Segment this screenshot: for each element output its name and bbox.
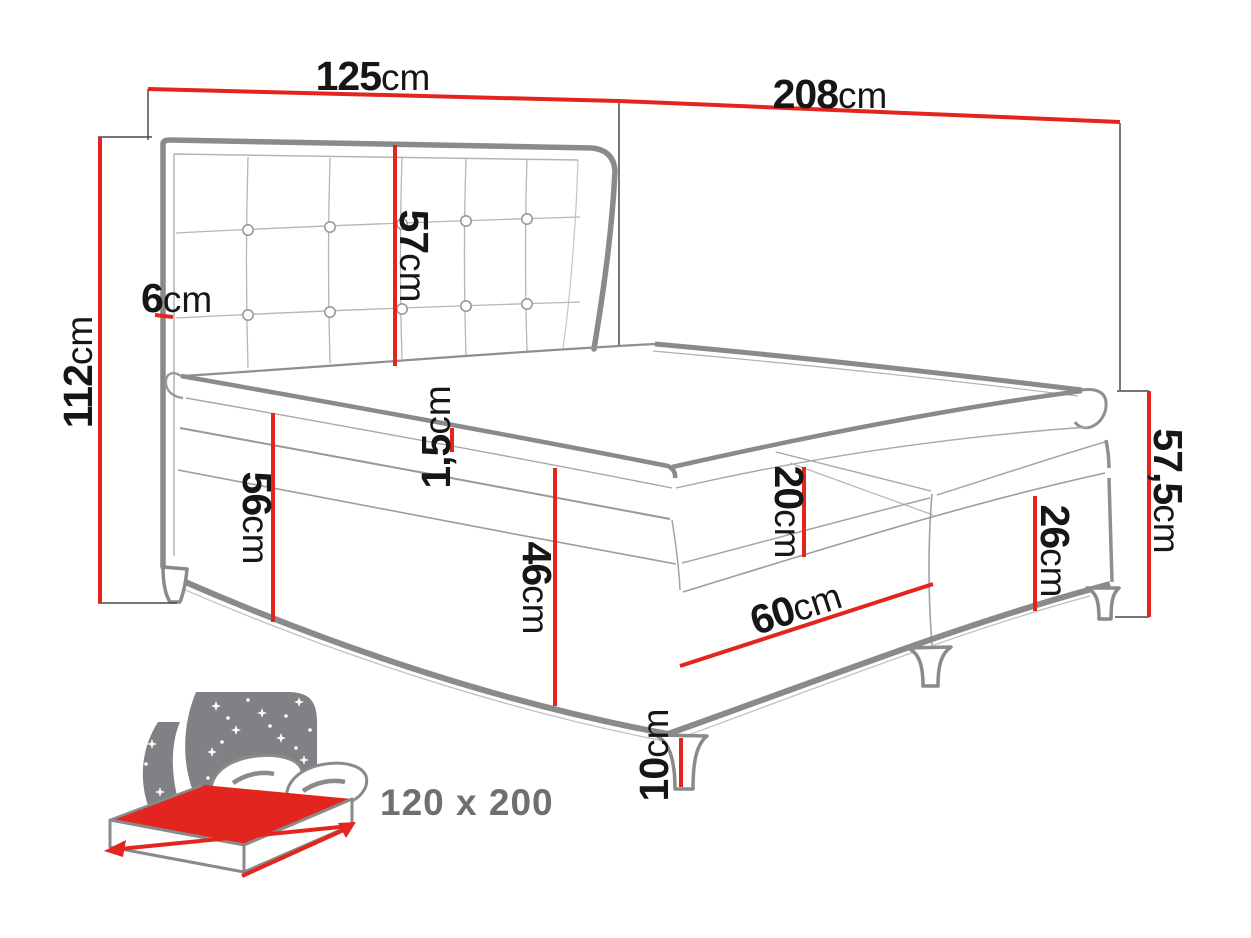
tuft-buttons <box>243 214 532 320</box>
tuft-button <box>461 216 471 226</box>
star-dot <box>308 728 312 732</box>
label-headboard-height: 112cm <box>55 316 101 428</box>
headboard-frame <box>163 140 615 567</box>
tuft-button <box>243 225 253 235</box>
tuft-button <box>325 222 335 232</box>
mattress-corner-curl <box>1075 390 1106 428</box>
dimension-labels: 125cm 208cm 112cm 6cm 57cm 1,5cm 56cm 46… <box>55 53 1191 801</box>
dimension-lines <box>100 89 1149 787</box>
label-side-thickness: 6cm <box>141 275 212 321</box>
headboard-tufting <box>176 157 580 368</box>
label-side-height: 56cm <box>234 472 280 565</box>
label-topper: 1,5cm <box>413 385 459 488</box>
tuft-seam-vertical <box>247 157 249 368</box>
base-box-outline <box>176 428 1112 741</box>
star-dot <box>268 724 272 728</box>
headboard-inner-right-edge <box>563 160 578 348</box>
mattress-rear-rail <box>655 344 1082 390</box>
label-base-height: 46cm <box>514 542 560 635</box>
label-box-half-width: 60cm <box>744 571 847 643</box>
star-dot <box>220 740 224 744</box>
tuft-seam-vertical <box>526 159 528 351</box>
middle-leg <box>908 647 951 686</box>
headboard-leg <box>163 567 187 602</box>
label-bed-length: 208cm <box>773 71 888 117</box>
right-box-top-edge <box>937 442 1105 495</box>
label-upper-box: 20cm <box>766 466 812 559</box>
tuft-seam-vertical <box>465 159 467 355</box>
tuft-seam-horizontal <box>176 217 580 233</box>
tuft-button <box>522 214 532 224</box>
tuft-button <box>522 299 532 309</box>
size-badge-label: 120 x 200 <box>380 782 554 823</box>
mattress-foot-edge <box>672 391 1082 467</box>
label-headboard-width: 125cm <box>316 53 431 99</box>
right-leg <box>1087 588 1119 619</box>
bed-drawing <box>163 140 1119 789</box>
tuft-button <box>397 304 407 314</box>
box-near-corner-edge <box>672 520 680 590</box>
tuft-seam-horizontal <box>176 302 580 318</box>
bed-dimension-diagram: 125cm 208cm 112cm 6cm 57cm 1,5cm 56cm 46… <box>0 0 1251 938</box>
mattress-outline <box>166 344 1106 488</box>
tuft-seam-vertical <box>329 158 331 363</box>
box-bottom-edge-foot <box>668 584 1110 734</box>
label-leg-height: 10cm <box>631 709 677 802</box>
star-dot <box>144 762 148 766</box>
star-dot <box>206 776 210 780</box>
mattress-head-edge <box>182 344 655 376</box>
mattress-rear-rail-inner <box>653 351 1078 396</box>
star-dot <box>284 714 288 718</box>
label-headboard-panel: 57cm <box>391 210 437 303</box>
star-dot <box>226 716 230 720</box>
star-dot <box>294 746 298 750</box>
label-foot-height: 57,5cm <box>1145 428 1191 553</box>
tuft-button <box>325 307 335 317</box>
headboard-outline <box>163 140 615 567</box>
size-badge: 120 x 200 <box>104 692 554 876</box>
tuft-button <box>461 301 471 311</box>
box-bottom-underline-foot <box>672 596 1090 741</box>
diagram-canvas: 125cm 208cm 112cm 6cm 57cm 1,5cm 56cm 46… <box>0 0 1251 938</box>
tuft-button <box>243 310 253 320</box>
box-right-edge <box>1106 440 1112 582</box>
label-lower-box: 26cm <box>1032 505 1078 598</box>
star-dot <box>246 698 250 702</box>
